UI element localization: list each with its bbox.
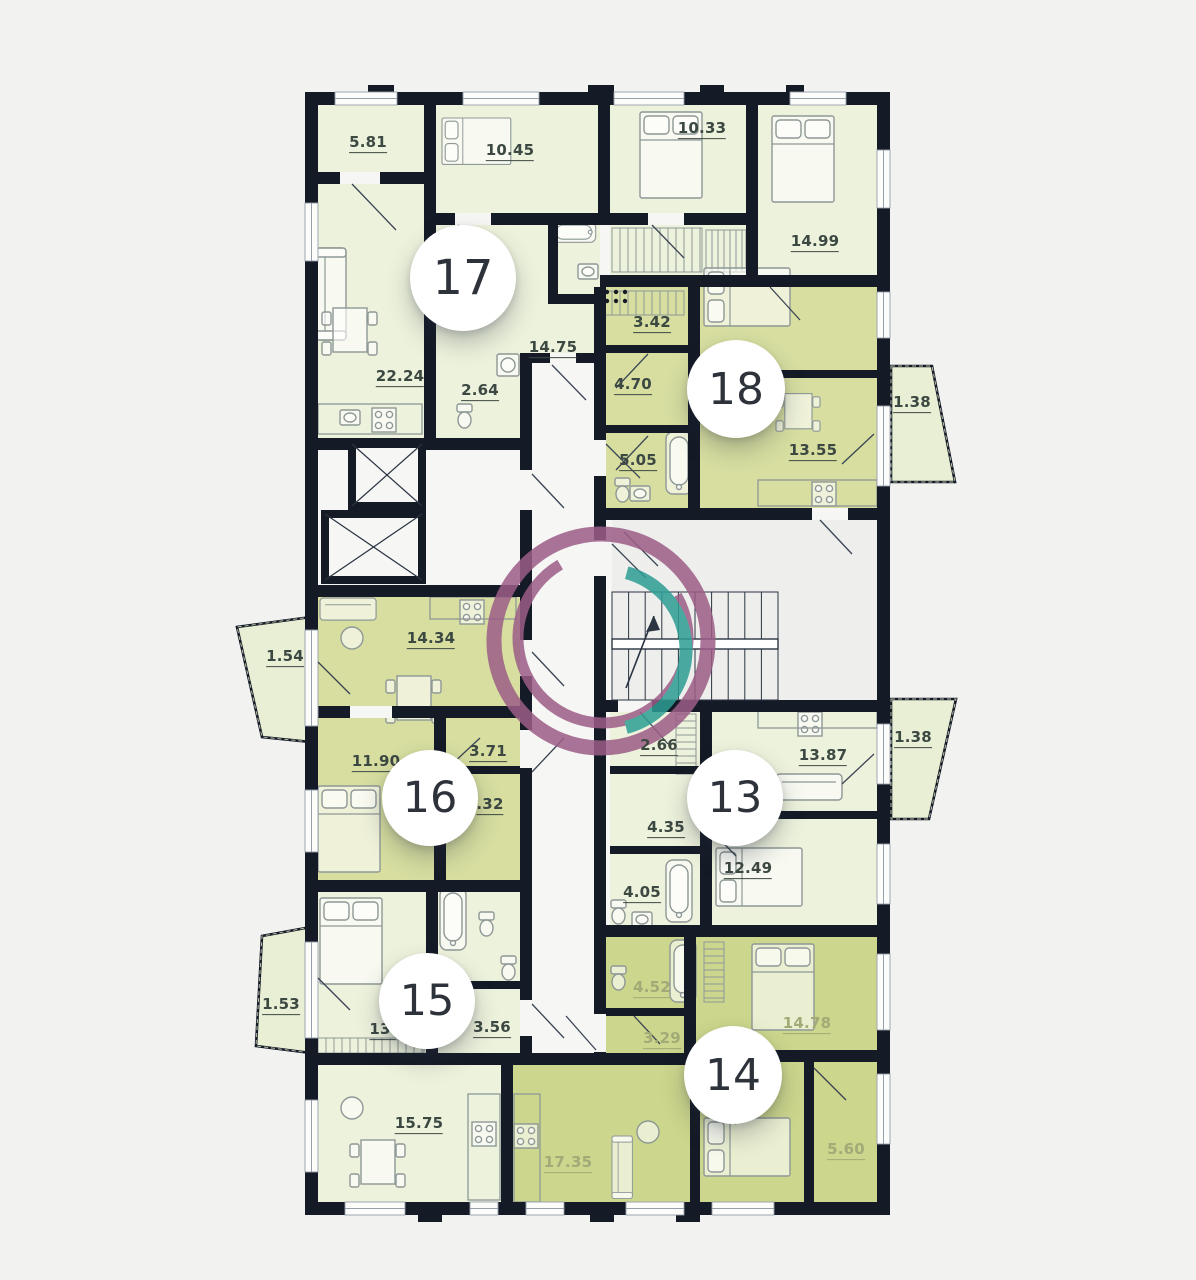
furniture-stove [514,1124,538,1148]
furniture-sofah [776,774,842,800]
furniture-stove [472,1122,496,1146]
furniture-wc [479,912,494,936]
floor-plan-stage: 5.8110.4510.3314.9922.242.6414.753.424.7… [0,0,1196,1280]
floor-plan-drawing [0,0,1196,1280]
furniture-stove [460,600,484,624]
furniture-wc [457,404,472,428]
furniture-sofah [320,598,376,620]
furniture-bedv [320,898,382,984]
balcony [237,617,311,742]
furniture-sink [340,410,360,425]
furniture-wc [501,956,516,980]
furniture-bedh [704,1118,790,1176]
balcony [891,366,955,482]
furniture-sink [632,912,652,927]
furniture-wc [611,966,626,990]
furniture-bedv [640,112,702,198]
furniture-stove [812,482,836,506]
furniture-wc [611,900,626,924]
furniture-bedv [772,116,834,202]
furniture-sink [578,264,598,279]
furniture-tubv [666,860,692,922]
furniture-sink [630,486,650,501]
furniture-ctable [341,1097,363,1119]
furniture-stove [798,712,822,736]
furniture-sofav [612,1136,632,1199]
furniture-wash [497,354,519,376]
furniture-stove [372,408,396,432]
furniture-bedv [752,944,814,1030]
furniture-ctable [341,627,363,649]
furniture-bedh [442,118,511,164]
furniture-bedv [318,786,380,872]
furniture-tubv [440,888,466,950]
furniture-bedh [716,848,802,906]
furniture-tubh [552,222,596,242]
balcony [891,699,956,819]
furniture-ctable [637,1121,659,1143]
furniture-wc [615,478,630,502]
balcony [256,927,311,1053]
